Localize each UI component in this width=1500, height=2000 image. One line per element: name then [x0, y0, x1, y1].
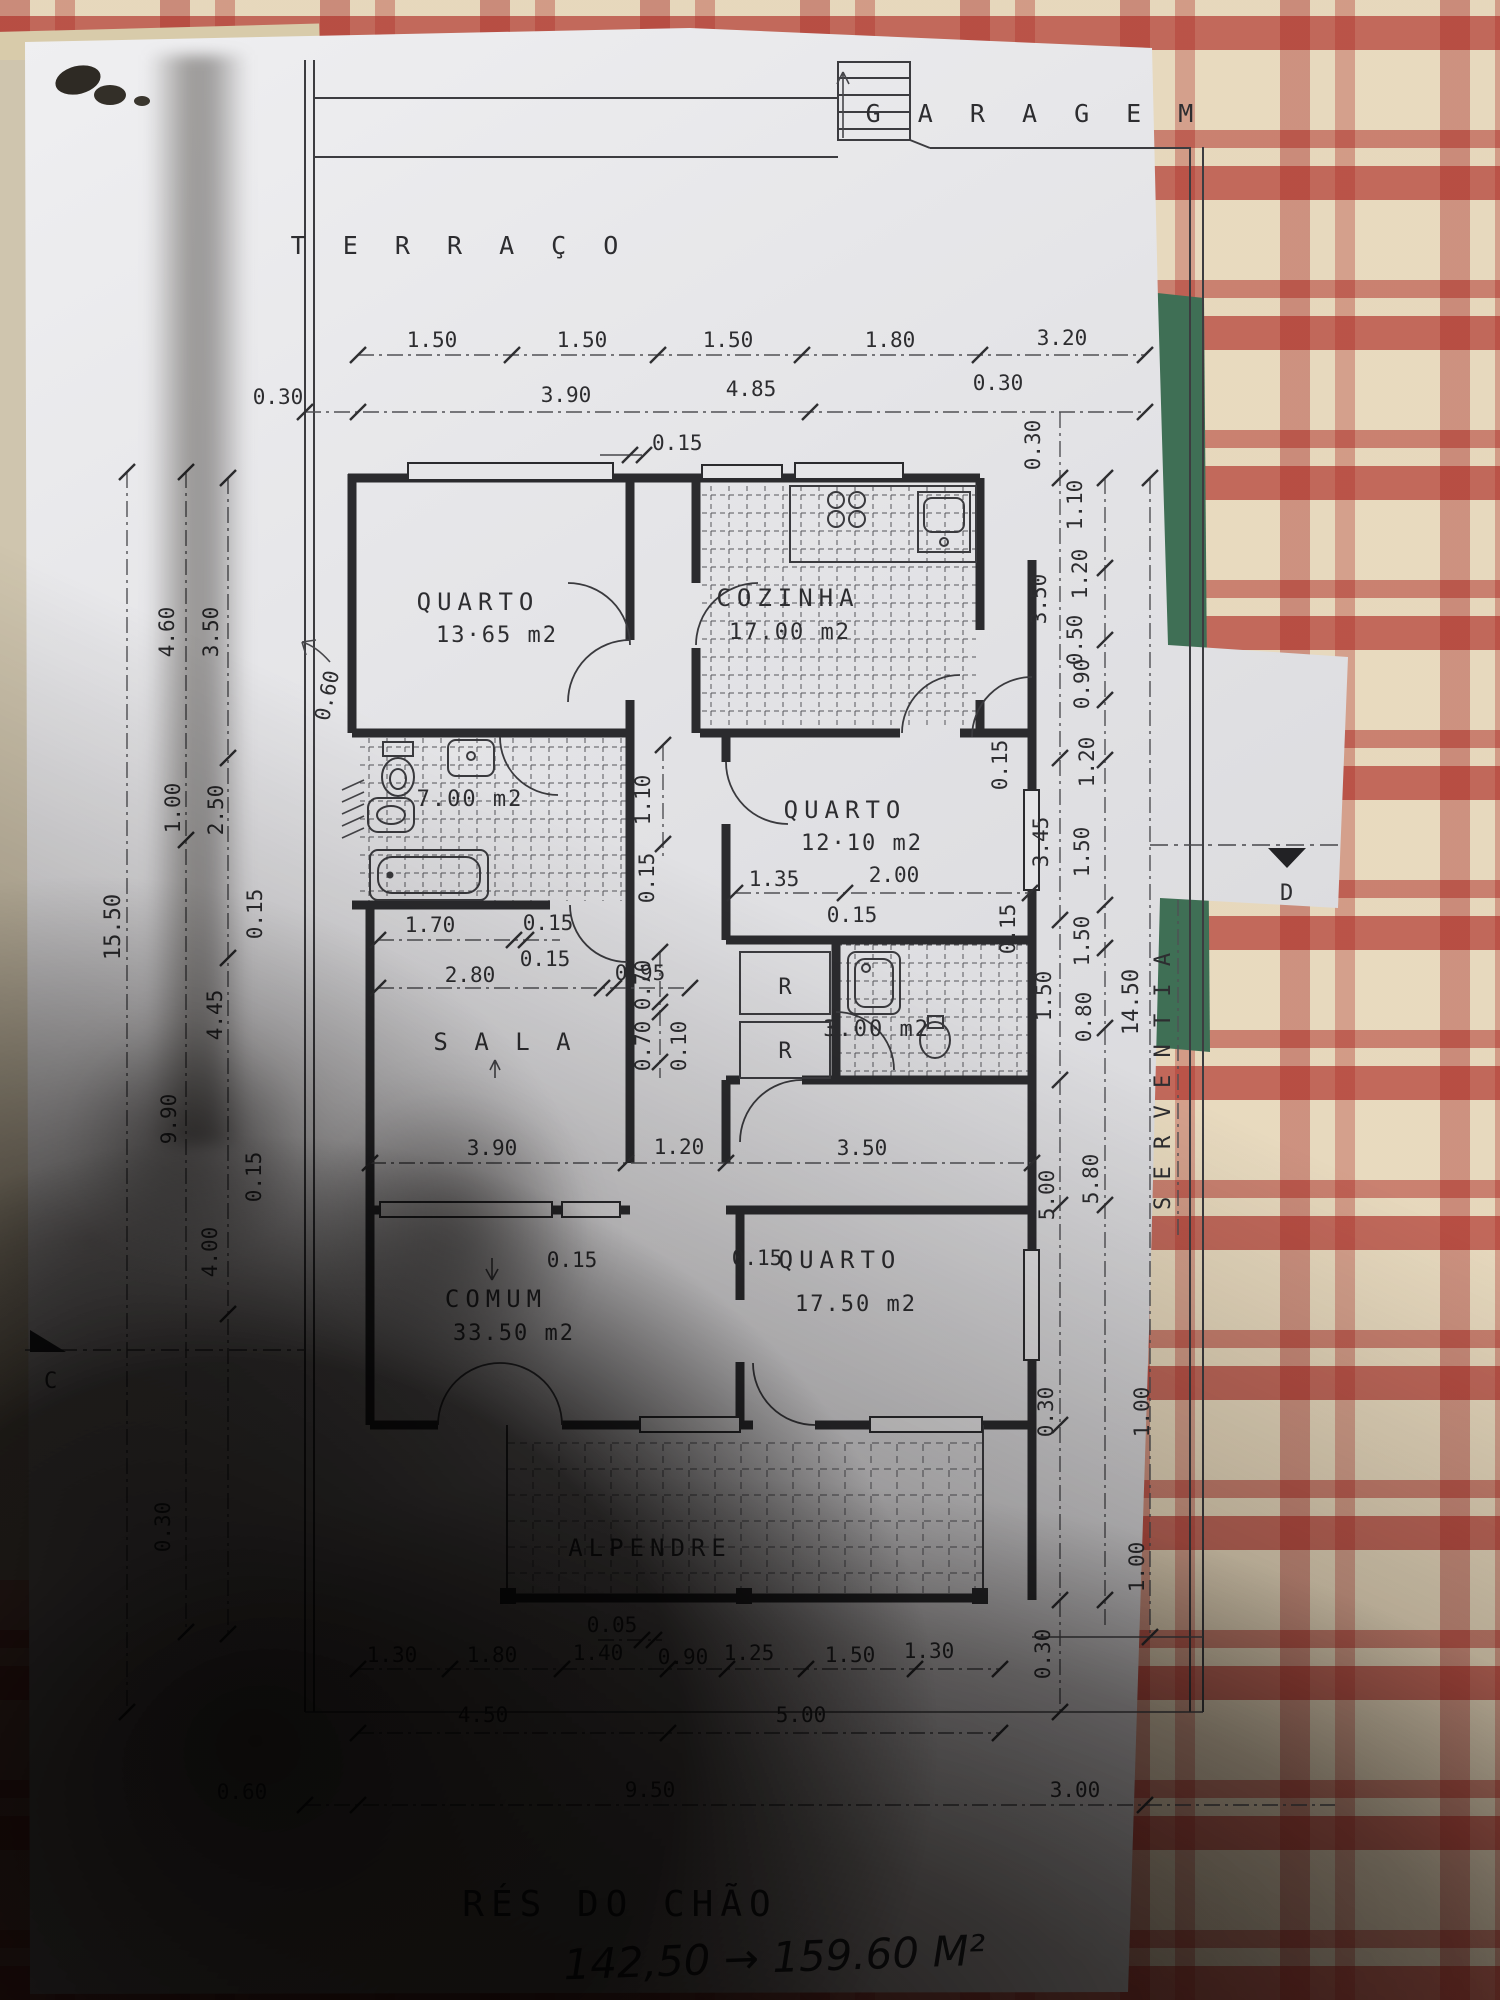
dim: 14.50	[1119, 969, 1144, 1035]
dim: 1.40	[573, 1641, 624, 1665]
dim: 9.90	[157, 1094, 181, 1145]
dim: 0.15	[988, 740, 1012, 791]
dim: 0.30	[1031, 1629, 1055, 1680]
photo-of-floorplan: { "site": { "garagem": "G A R A G E M", …	[0, 0, 1500, 2000]
section-c-label: C	[44, 1369, 57, 1394]
cozinha-area: 17.00 m2	[729, 620, 851, 645]
dim: 1.80	[865, 328, 916, 352]
dim: 0.15	[635, 853, 659, 904]
floorplan-photo: G A R A G E M T E R R A Ç O S E R V E N …	[0, 0, 1500, 2000]
dim: 4.50	[458, 1703, 509, 1727]
dim: 0.10	[667, 1021, 691, 1072]
dim: 1.10	[1063, 480, 1087, 531]
cozinha-label: COZINHA	[716, 584, 859, 612]
closet-r1: R	[778, 975, 793, 1000]
sala-label: S A L A	[433, 1028, 576, 1056]
dim: 0.60	[217, 1780, 268, 1804]
dim: 1.70	[405, 913, 456, 937]
dim: 1.25	[724, 1641, 775, 1665]
dim: 0.15	[652, 431, 703, 455]
dim: 0.15	[520, 947, 571, 971]
section-d-label: D	[1280, 881, 1293, 906]
quarto1-area: 13·65 m2	[436, 623, 558, 648]
dim: 4.45	[203, 990, 227, 1041]
banho-area: 7.00 m2	[417, 787, 524, 812]
dim: 1.20	[1075, 737, 1099, 788]
dim: 0.90	[1070, 659, 1094, 710]
floor-title: RÉS DO CHÃO	[462, 1883, 777, 1925]
quarto2-area: 12·10 m2	[801, 831, 923, 856]
dim: 15.50	[101, 894, 126, 960]
dim: 0.15	[547, 1248, 598, 1272]
dim: 9.50	[625, 1778, 676, 1802]
dim: 1.50	[557, 328, 608, 352]
dim: 3.45	[1029, 817, 1053, 868]
dim: 0.15	[523, 911, 574, 935]
dim: 1.50	[1070, 827, 1094, 878]
dim: 3.90	[541, 383, 592, 407]
dim: 3.50	[1027, 574, 1051, 625]
dim: 0.50	[1063, 615, 1087, 666]
dim: 0.05	[587, 1613, 638, 1637]
dim: 1.00	[1125, 1542, 1149, 1593]
dim: 0.90	[658, 1645, 709, 1669]
dim: 5.00	[1035, 1170, 1059, 1221]
dim: 0.15	[996, 904, 1020, 955]
dim: 0.30	[1034, 1387, 1058, 1438]
dim: 5.00	[776, 1703, 827, 1727]
dim: 0.15	[732, 1246, 783, 1270]
dim: 0.70	[631, 1021, 655, 1072]
dim: 1.00	[1130, 1387, 1154, 1438]
dim: 0.70	[631, 960, 655, 1011]
dim: 0.30	[151, 1502, 175, 1553]
dim: 1.50	[825, 1643, 876, 1667]
dim: 2.80	[445, 963, 496, 987]
dim: 3.50	[837, 1136, 888, 1160]
dim: 0.15	[827, 903, 878, 927]
dim: 1.35	[749, 867, 800, 891]
dim: 1.50	[1070, 916, 1094, 967]
quarto3-label: QUARTO	[779, 1246, 902, 1274]
dim: 0.15	[243, 889, 267, 940]
dim: 3.50	[199, 607, 223, 658]
dim: 1.50	[703, 328, 754, 352]
dim: 4.60	[155, 607, 179, 658]
dim: 4.85	[726, 377, 777, 401]
comum-area: 33.50 m2	[453, 1321, 575, 1346]
wc-area: 3.00 m2	[823, 1017, 930, 1042]
dim: 1.30	[904, 1639, 955, 1663]
alpendre-label: ALPENDRE	[568, 1534, 732, 1562]
dim: 1.80	[467, 1643, 518, 1667]
dim: 1.20	[654, 1135, 705, 1159]
dim: 1.30	[367, 1643, 418, 1667]
dim: 1.10	[631, 775, 655, 826]
quarto1-label: QUARTO	[417, 588, 540, 616]
dim: 0.30	[1021, 420, 1045, 471]
comum-label: COMUM	[445, 1285, 547, 1313]
dim: 1.50	[407, 328, 458, 352]
dim: 2.00	[869, 863, 920, 887]
dim: 3.20	[1037, 326, 1088, 350]
dim: 0.30	[973, 371, 1024, 395]
dim: 0.30	[253, 385, 304, 409]
dim: 4.00	[198, 1227, 222, 1278]
dim: 5.80	[1079, 1154, 1103, 1205]
dim: 3.00	[1050, 1778, 1101, 1802]
dim: 1.00	[161, 783, 185, 834]
quarto3-area: 17.50 m2	[795, 1292, 917, 1317]
closet-r2: R	[778, 1039, 793, 1064]
dim: 3.90	[467, 1136, 518, 1160]
terraco-label: T E R R A Ç O	[291, 231, 630, 260]
dim: 0.15	[242, 1152, 266, 1203]
serventia-label: S E R V E N T I A	[1151, 951, 1176, 1210]
quarto2-label: QUARTO	[784, 796, 907, 824]
dim: 2.50	[204, 785, 228, 836]
garagem-label: G A R A G E M	[866, 99, 1205, 128]
dim: 0.80	[1072, 992, 1096, 1043]
dim: 1.20	[1068, 549, 1092, 600]
dim: 1.50	[1032, 971, 1056, 1022]
